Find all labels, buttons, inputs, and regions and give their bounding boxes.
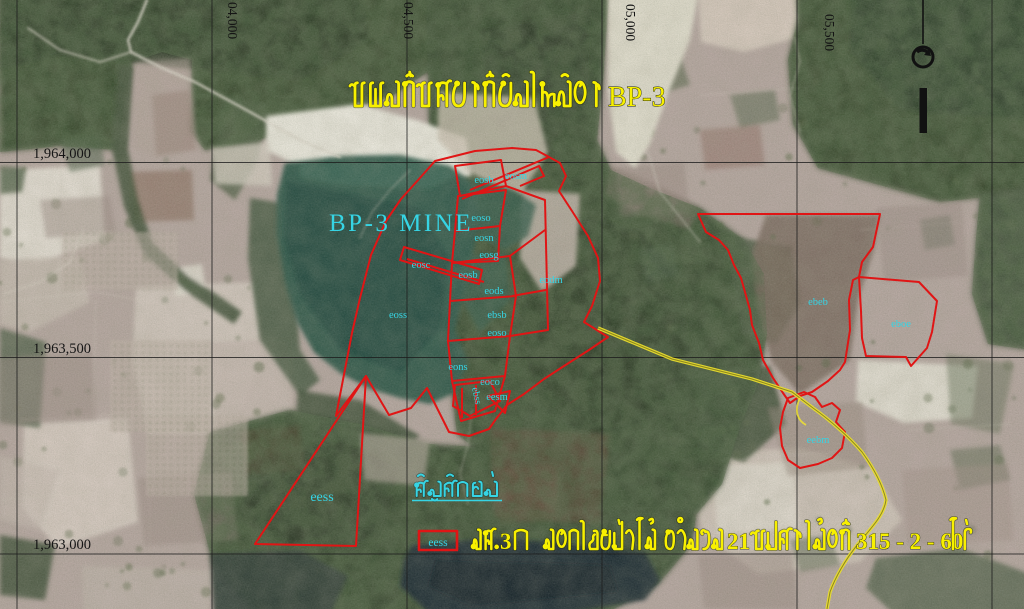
svg-text:1,964,000: 1,964,000: [33, 146, 91, 162]
svg-text:21: 21: [727, 529, 750, 554]
svg-text:1,963,000: 1,963,000: [33, 537, 91, 553]
svg-text:04,000: 04,000: [225, 2, 240, 39]
svg-text:eoso: eoso: [471, 213, 490, 224]
svg-text:eons: eons: [448, 362, 467, 373]
svg-text:eess: eess: [310, 490, 333, 505]
svg-text:ebsb: ebsb: [487, 310, 506, 321]
svg-text:eoss: eoss: [389, 310, 407, 321]
svg-text:05,000: 05,000: [623, 4, 638, 41]
svg-text:eodm: eodm: [539, 275, 562, 286]
svg-text:ebeb: ebeb: [808, 297, 828, 308]
svg-text:eboe: eboe: [891, 319, 911, 330]
svg-text:04,500: 04,500: [401, 2, 416, 39]
svg-text:eosb: eosb: [458, 270, 477, 281]
svg-text:BP-3: BP-3: [608, 82, 666, 113]
svg-text:315 - 2 - 60: 315 - 2 - 60: [856, 529, 963, 554]
svg-text:eods: eods: [484, 286, 503, 297]
svg-text:eebm: eebm: [807, 435, 830, 446]
svg-text:05,500: 05,500: [822, 14, 837, 51]
svg-text:eess: eess: [428, 537, 448, 549]
svg-text:eosc: eosc: [412, 260, 431, 271]
svg-text:eesm: eesm: [486, 392, 508, 403]
svg-text:eoco: eoco: [480, 377, 500, 388]
svg-text:eosm: eosm: [505, 171, 527, 182]
svg-text:eosn: eosn: [474, 233, 494, 244]
svg-text:BP-3 MINE: BP-3 MINE: [329, 210, 473, 237]
svg-text:3: 3: [500, 529, 512, 554]
svg-text:1,963,500: 1,963,500: [33, 341, 91, 357]
svg-text:eoso: eoso: [487, 328, 506, 339]
svg-text:eosg: eosg: [479, 250, 499, 261]
svg-text:eosb: eosb: [474, 175, 493, 186]
